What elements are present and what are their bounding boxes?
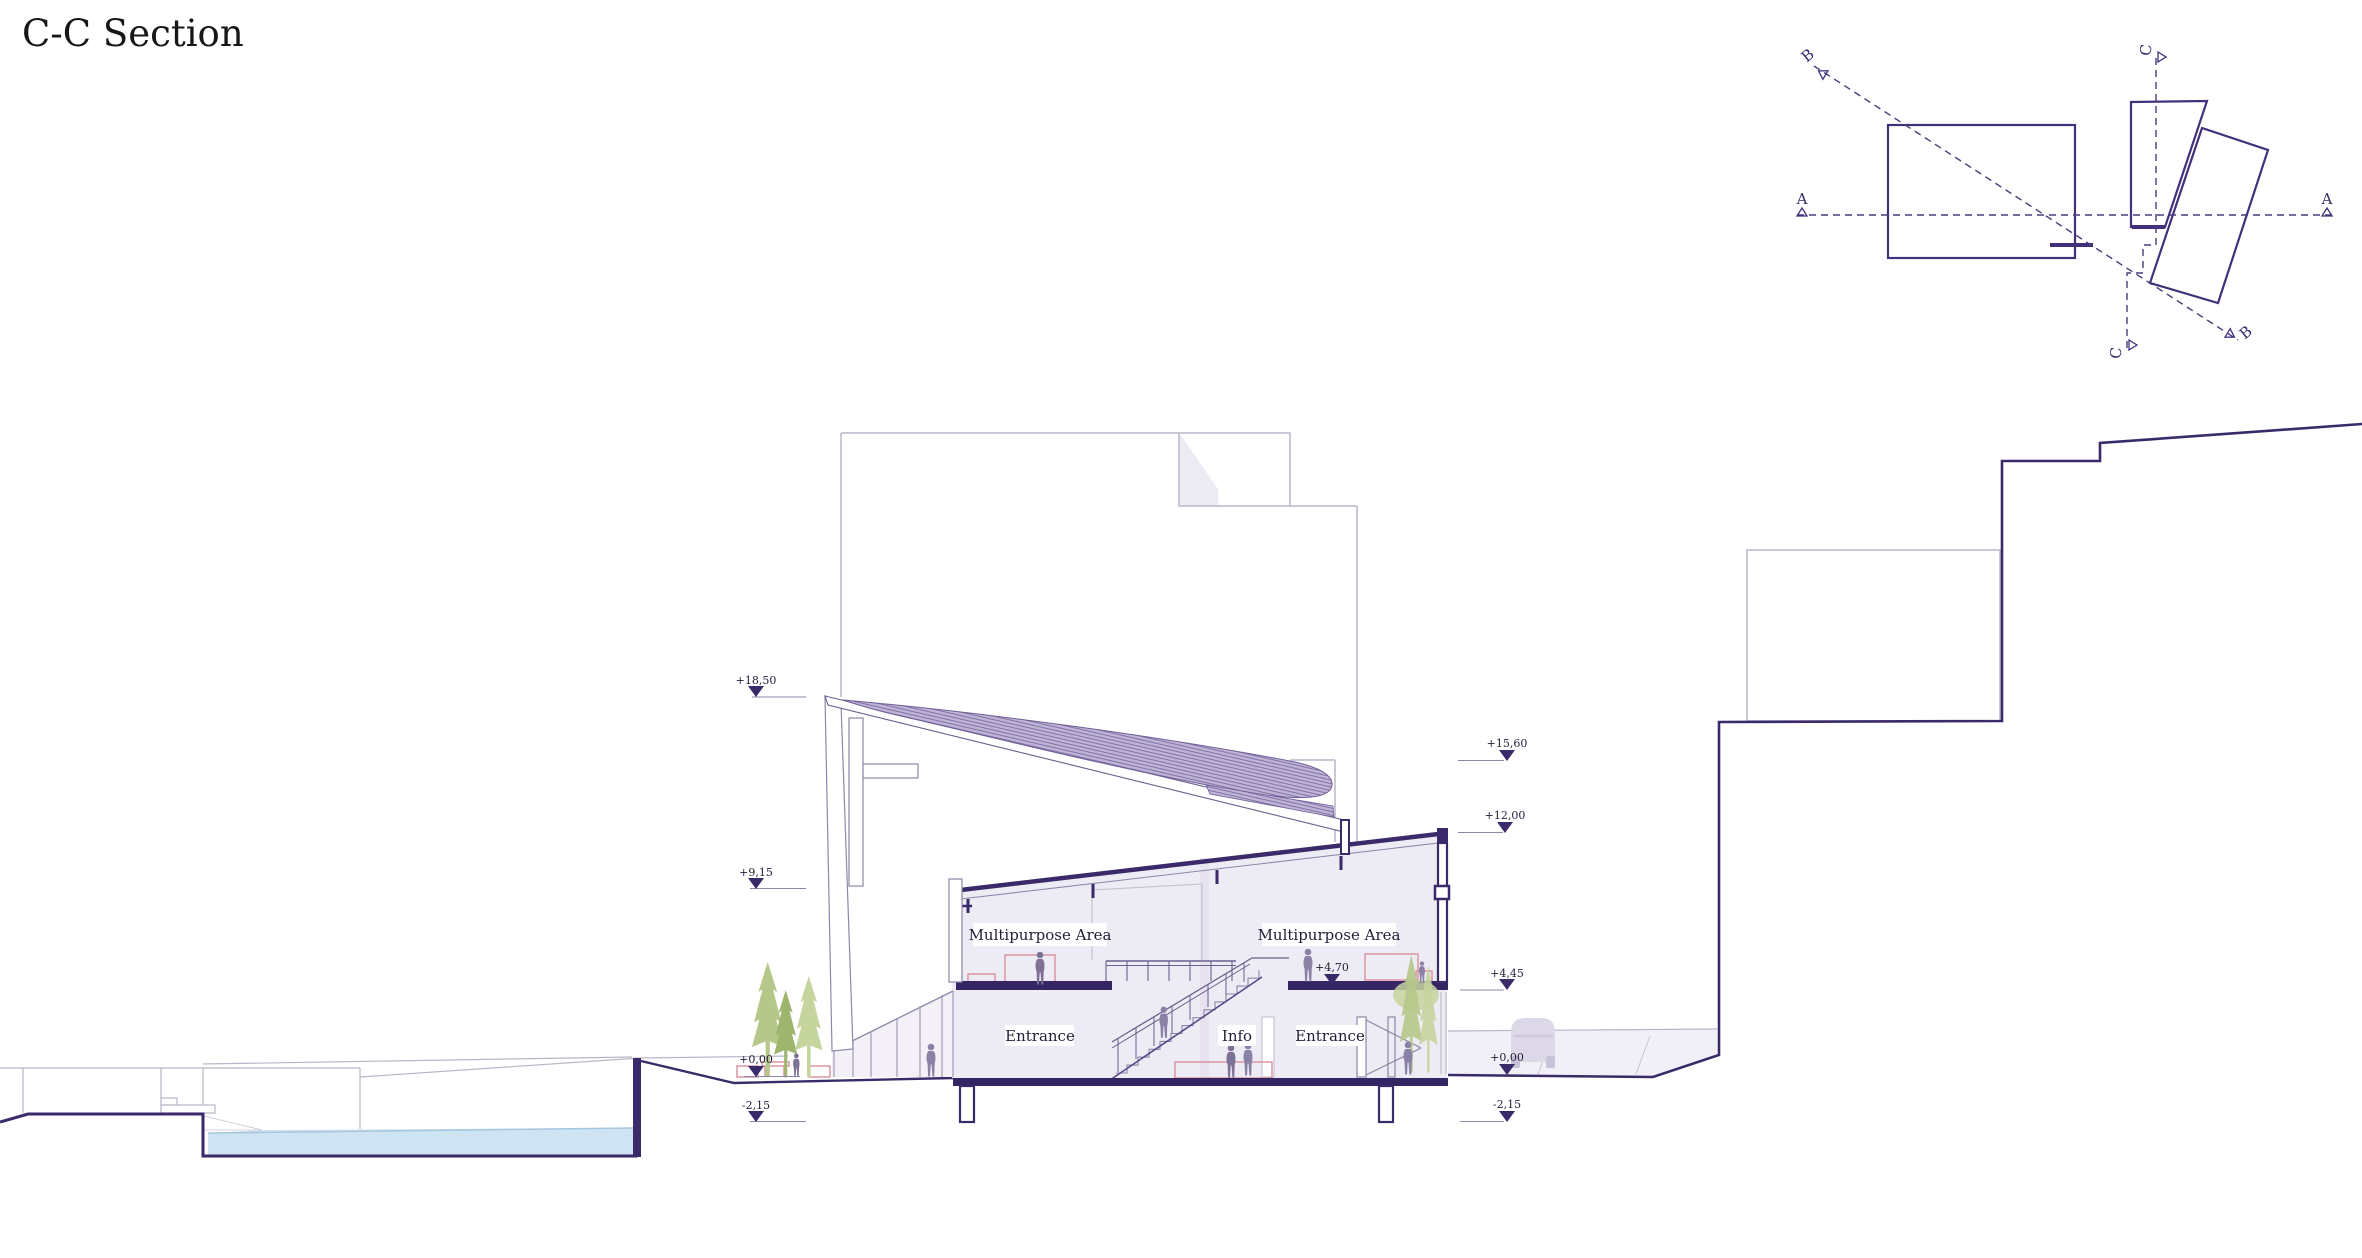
svg-text:Entrance: Entrance [1295,1027,1365,1045]
svg-text:Multipurpose Area: Multipurpose Area [1258,926,1401,944]
svg-text:+15,60: +15,60 [1487,737,1528,750]
label-a-right: A [2321,190,2333,208]
svg-text:+0,00: +0,00 [1490,1051,1524,1064]
building-section [737,696,1449,1122]
svg-text:+12,00: +12,00 [1485,809,1526,822]
label-c-bottom: C [2107,346,2126,359]
foundation-column [1379,1086,1393,1122]
elevation-marker-1850: +18,50 [736,674,806,697]
elevation-marker-m215-right: -2,15 [1460,1098,1521,1122]
person-figure [793,1054,799,1078]
label-entrance-left: Entrance [1005,1025,1075,1046]
hillside-profile [1448,424,2362,1077]
label-info: Info [1218,1025,1256,1046]
background-column [1200,858,1209,1078]
marker-c-bottom [2129,340,2137,350]
svg-text:+9,15: +9,15 [739,866,773,879]
label-c-top: C [2137,43,2156,56]
elevation-marker-445: +4,45 [1460,967,1524,990]
elevation-marker-1560: +15,60 [1458,737,1527,761]
main-roof-fascia [1341,820,1349,854]
marker-c-top [2158,52,2166,62]
platform-step [161,1098,177,1105]
elevation-marker-915: +9,15 [739,866,806,889]
svg-text:Info: Info [1222,1027,1252,1045]
label-a-left: A [1796,190,1808,208]
label-multipurpose-left: Multipurpose Area [969,923,1112,946]
foundation-column [960,1086,974,1122]
key-plan-main-block [1888,125,2075,258]
svg-text:-2,15: -2,15 [1493,1098,1521,1111]
right-terrain [1448,424,2362,1077]
page-title: C-C Section [22,12,244,55]
label-multipurpose-right: Multipurpose Area [1258,923,1401,946]
cross-vertical [849,718,863,886]
svg-text:Multipurpose Area: Multipurpose Area [969,926,1112,944]
right-wall-head [1437,828,1448,844]
elevation-marker-m215-left: -2,15 [742,1099,806,1122]
upper-floor-slab-left [956,981,1112,990]
svg-text:+0,00: +0,00 [739,1053,773,1066]
label-b-top: B [1798,45,1818,66]
upper-hall-left-wall [949,879,962,982]
outdoor-table [809,1066,830,1077]
svg-text:-2,15: -2,15 [742,1099,770,1112]
platform-step [161,1105,215,1113]
roof-louver-screen [843,700,1332,798]
pool-right-wall [633,1058,641,1157]
hillside-building [1747,550,2000,721]
ground-floor-slab [953,1078,1448,1086]
wall-fixing [1435,886,1449,899]
section-drawing: C-C Section A A B B C C [0,0,2362,1258]
label-entrance-right: Entrance [1295,1025,1365,1046]
label-b-bottom: B [2236,322,2256,343]
right-wall [1438,843,1447,982]
svg-text:Entrance: Entrance [1005,1027,1075,1045]
svg-text:+4,70: +4,70 [1315,961,1349,974]
pool-ramp [204,1116,262,1130]
facade-cross [849,718,918,886]
cross-horizontal [863,764,918,778]
key-plan [1888,101,2268,303]
svg-text:+4,45: +4,45 [1490,967,1524,980]
svg-text:+18,50: +18,50 [736,674,777,687]
elevation-marker-1200: +12,00 [1458,809,1525,833]
